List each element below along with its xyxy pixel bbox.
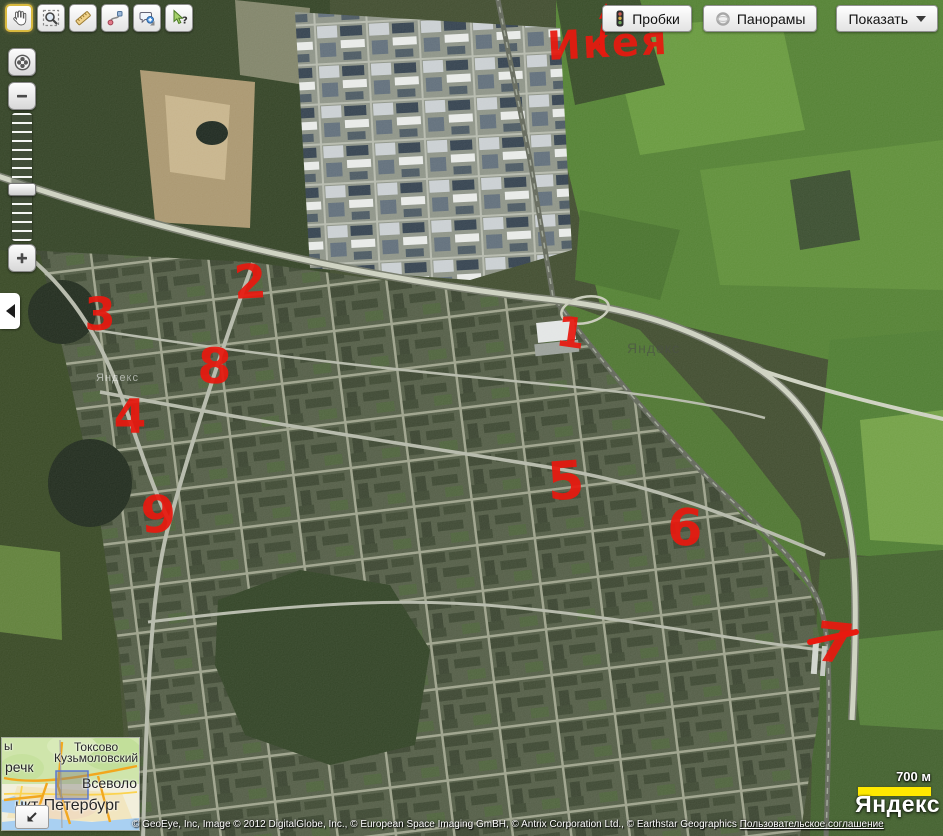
zoom-control — [8, 48, 36, 272]
show-dropdown-button[interactable]: Показать — [836, 5, 938, 32]
attribution-line: © GeoEye, Inc, Image © 2012 DigitalGlobe… — [132, 819, 884, 830]
panoramas-button[interactable]: Панорамы — [703, 5, 818, 32]
zoom-slider-handle[interactable] — [8, 183, 36, 196]
minimap-collapse-button[interactable] — [15, 805, 49, 829]
overview-minimap[interactable]: ыТоксовоКузьмоловскийречкВсеволонкт-Пете… — [2, 738, 139, 830]
whats-here-button[interactable]: ? — [165, 4, 193, 32]
route-tool-button[interactable] — [101, 4, 129, 32]
magnifier-icon — [42, 9, 60, 27]
ruler-tool-button[interactable] — [69, 4, 97, 32]
map-layer-controls: Пробки Панорамы Показать — [602, 5, 938, 32]
clover-extent-icon — [13, 53, 32, 72]
chevron-left-icon — [6, 304, 15, 318]
arrow-down-left-icon — [25, 810, 39, 824]
zoom-slider-track[interactable] — [12, 113, 32, 241]
panorama-icon — [715, 11, 731, 27]
plus-icon — [13, 249, 31, 267]
comment-plus-icon — [138, 9, 156, 27]
chevron-down-icon — [916, 16, 926, 22]
traffic-button-label: Пробки — [632, 11, 680, 27]
show-button-label: Показать — [848, 11, 908, 27]
satellite-map-canvas[interactable] — [0, 0, 943, 836]
panoramas-button-label: Панорамы — [737, 11, 806, 27]
svg-text:?: ? — [182, 16, 188, 27]
hand-icon — [10, 9, 28, 27]
yandex-logo[interactable]: Яндекс — [855, 791, 940, 818]
traffic-light-icon — [614, 10, 626, 27]
traffic-button[interactable]: Пробки — [602, 5, 692, 32]
magnifier-zoom-button[interactable] — [37, 4, 65, 32]
pan-tool-button[interactable] — [5, 4, 33, 32]
minimap-viewport-rect[interactable] — [56, 771, 88, 799]
minus-icon — [13, 87, 31, 105]
sidebar-collapse-tab[interactable] — [0, 293, 20, 329]
zoom-to-extent-button[interactable] — [8, 48, 36, 76]
add-placemark-button[interactable] — [133, 4, 161, 32]
map-toolbar: ? — [5, 4, 193, 32]
cursor-question-icon: ? — [170, 9, 188, 27]
route-icon — [106, 9, 124, 27]
ruler-icon — [74, 9, 92, 27]
copyright-text: © GeoEye, Inc, Image © 2012 DigitalGlobe… — [132, 819, 737, 830]
zoom-in-button[interactable] — [8, 244, 36, 272]
zoom-out-button[interactable] — [8, 82, 36, 110]
yandex-maps-app: ЯндексЯндекс Икея123849567 — [0, 0, 943, 836]
user-agreement-link[interactable]: Пользовательское соглашение — [740, 819, 884, 830]
